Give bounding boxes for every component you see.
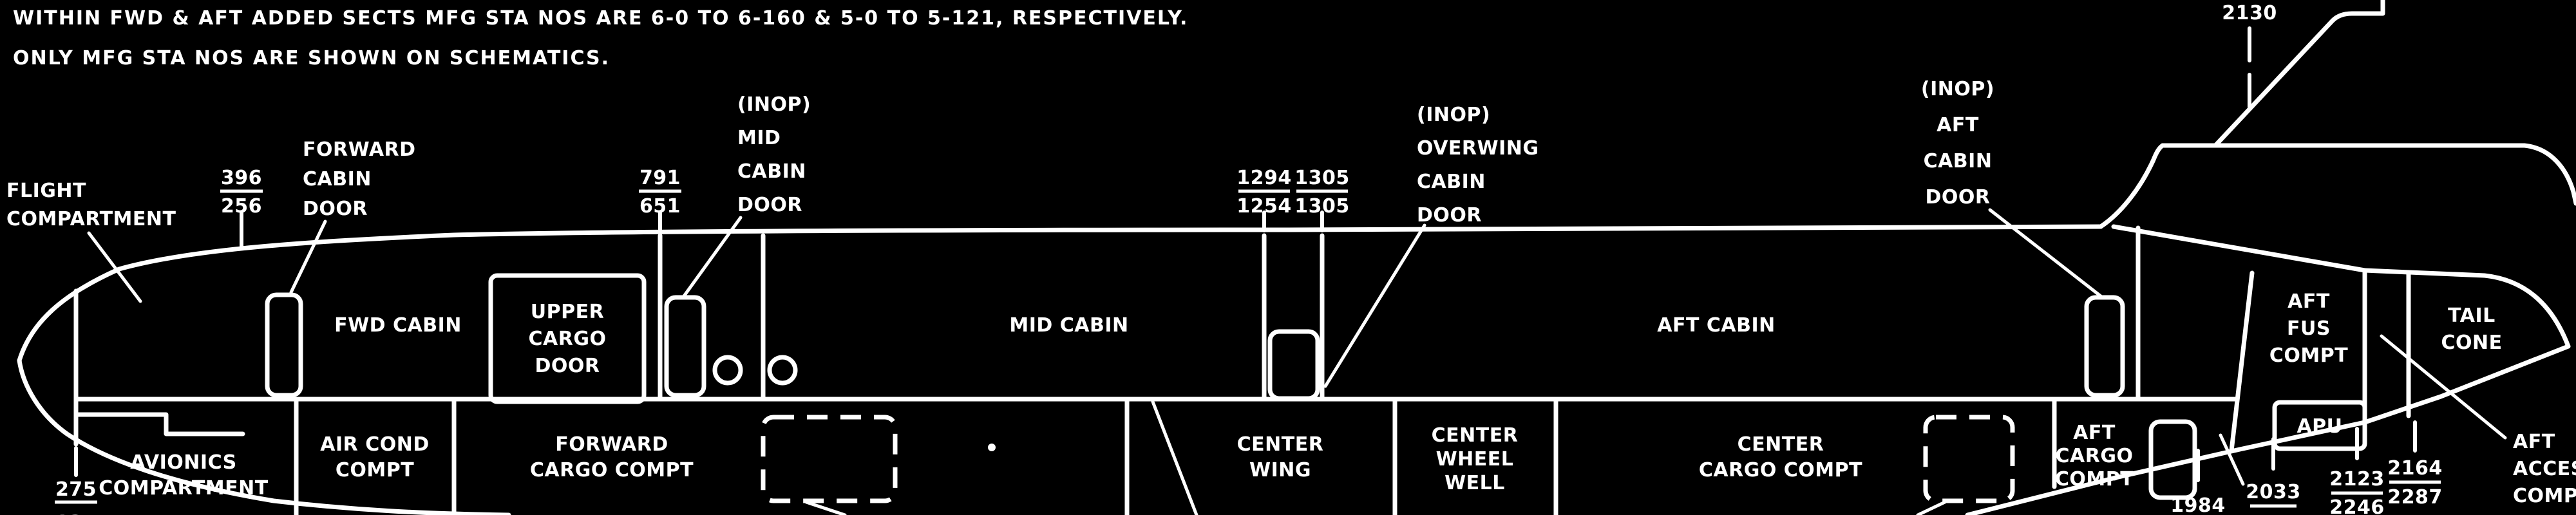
aft-cabin-label: AFT CABIN <box>1657 314 1776 337</box>
aft-access-line3: COMPARTMENT <box>2513 485 2576 507</box>
tail-cone-line2: CONE <box>2441 332 2502 354</box>
station-1984-label: 1984 <box>2170 494 2226 515</box>
overwing-cabin-door-leader <box>1325 225 1425 386</box>
station-2164-fs: 2164 <box>2387 457 2443 480</box>
apu-label: APU <box>2297 415 2342 438</box>
mid-cabin-door-line1: (INOP) <box>737 93 811 116</box>
station-275-mfg: 135 <box>55 512 97 515</box>
avionics-compartment-label: AVIONICS COMPARTMENT <box>99 451 268 500</box>
forward-cabin-door-outline <box>267 295 301 395</box>
avionics-line2: COMPARTMENT <box>99 477 268 500</box>
station-2033-label: 2033 <box>2246 481 2301 506</box>
aft-access-compartment-label: AFT ACCESS COMPARTMENT <box>2513 431 2576 507</box>
center-wing-label: CENTER WING <box>1237 433 1324 482</box>
note-line-2: ONLY MFG STA NOS ARE SHOWN ON SCHEMATICS… <box>13 47 610 70</box>
aft-cabin-door-line4: DOOR <box>1925 186 1990 209</box>
note-line-1: WITHIN FWD & AFT ADDED SECTS MFG STA NOS… <box>13 7 1188 30</box>
station-2130-label: 2130 <box>2222 2 2277 24</box>
aft-cabin-door-leader <box>1990 210 2101 296</box>
upper-cargo-door-line2: CARGO <box>529 328 607 350</box>
center-cargo-compt-label: CENTER CARGO COMPT <box>1699 433 1862 482</box>
overwing-cabin-door-line4: DOOR <box>1417 204 1482 227</box>
aircraft-fuselage-stations-diagram: WITHIN FWD & AFT ADDED SECTS MFG STA NOS… <box>0 0 2576 515</box>
aft-fus-line1: AFT <box>2287 290 2330 313</box>
mid-cabin-door-outline <box>667 297 704 395</box>
flight-compartment-line1: FLIGHT <box>6 180 86 202</box>
center-cargo-door-dashed-outline <box>1926 417 2012 501</box>
station-275-label: 275 135 <box>55 478 97 515</box>
avionics-line1: AVIONICS <box>130 451 237 474</box>
mid-cabin-door-label: (INOP) MID CABIN DOOR <box>737 93 811 216</box>
overwing-cabin-door-label: (INOP) OVERWING CABIN DOOR <box>1417 104 1539 227</box>
mid-cabin-label: MID CABIN <box>1009 314 1128 337</box>
aft-cabin-door-line1: (INOP) <box>1921 78 1994 100</box>
tail-cone-label: TAIL CONE <box>2441 304 2502 354</box>
aft-cargo-line3: COMPT <box>2055 468 2134 491</box>
center-wing-line1: CENTER <box>1237 433 1324 456</box>
avionics-compartment-step-line <box>76 415 243 434</box>
station-791-fs: 791 <box>639 167 681 189</box>
station-396-label: 396 256 <box>220 167 263 218</box>
station-ticks <box>76 28 2415 480</box>
wheel-well-line1: CENTER <box>1432 424 1519 447</box>
forward-cabin-door-line3: DOOR <box>303 198 368 220</box>
flight-compartment-label: FLIGHT COMPARTMENT <box>6 180 176 230</box>
forward-cabin-door-line2: CABIN <box>303 168 372 191</box>
aft-cabin-door-label: (INOP) AFT CABIN DOOR <box>1921 78 1994 209</box>
aft-cargo-compt-label: AFT CARGO COMPT <box>2055 422 2134 491</box>
station-791-mfg: 651 <box>639 195 681 218</box>
flight-compartment-line2: COMPARTMENT <box>6 208 176 230</box>
station-1294-label: 1294 1254 <box>1236 167 1292 218</box>
station-396-fs: 396 <box>221 167 262 189</box>
station-1294-mfg: 1254 <box>1236 195 1292 218</box>
station-1305-label: 1305 1305 <box>1294 167 1350 218</box>
wheel-well-line2: WHEEL <box>1436 448 1514 471</box>
aft-fus-compt-label: AFT FUS COMPT <box>2269 290 2348 367</box>
tail-cone-line1: TAIL <box>2448 304 2495 327</box>
forward-cabin-door-label: FORWARD CABIN DOOR <box>303 138 416 220</box>
forward-cargo-door-leader <box>806 502 845 515</box>
aft-fus-line2: FUS <box>2287 317 2331 340</box>
station-1294-fs: 1294 <box>1236 167 1292 189</box>
overwing-cabin-door-line3: CABIN <box>1417 171 1486 193</box>
station-2123-mfg: 2246 <box>2329 496 2385 515</box>
center-cargo-door-leader <box>1918 502 1945 515</box>
aft-cabin-door-line3: CABIN <box>1924 150 1993 173</box>
station-2033-fs: 2033 <box>2246 481 2301 503</box>
air-cond-compt-label: AIR COND COMPT <box>320 433 429 482</box>
aft-cargo-line2: CARGO <box>2056 445 2134 467</box>
aft-cabin-door-line2: AFT <box>1937 114 1979 136</box>
mid-cabin-door-line4: DOOR <box>737 194 802 216</box>
aft-access-line2: ACCESS <box>2513 458 2576 480</box>
aft-fus-line3: COMPT <box>2269 344 2348 367</box>
wheel-well-line3: WELL <box>1444 472 1505 494</box>
aft-ceiling-taper-line <box>2114 227 2365 270</box>
mid-cabin-door-line2: MID <box>737 127 781 149</box>
aft-cabin-door-outline <box>2087 297 2123 395</box>
compartment-labels: FWD CABIN MID CABIN AFT CABIN AVIONICS C… <box>99 290 2502 500</box>
overwing-cabin-door-outline <box>1270 332 1318 398</box>
fwd-cabin-label: FWD CABIN <box>334 314 462 337</box>
upper-cargo-door-line3: DOOR <box>535 355 600 377</box>
mid-band-leader <box>1153 402 1197 515</box>
aft-pressure-bulkhead-line <box>2231 273 2252 451</box>
forward-cargo-compt-label: FORWARD CARGO COMPT <box>530 433 694 482</box>
cabin-window-left <box>715 357 741 383</box>
station-275-fs: 275 <box>55 478 97 501</box>
aft-access-line1: AFT <box>2513 431 2555 453</box>
reference-dot <box>988 444 996 451</box>
aft-cargo-line1: AFT <box>2073 422 2116 444</box>
air-cond-line2: COMPT <box>336 459 414 482</box>
station-1305-mfg: 1305 <box>1294 195 1350 218</box>
fuselage-top-contour <box>19 227 2101 360</box>
mid-cabin-door-line3: CABIN <box>737 160 806 183</box>
center-wheel-well-label: CENTER WHEEL WELL <box>1432 424 1519 494</box>
dorsal-fin-fillet <box>2101 145 2163 227</box>
station-2123-label: 2123 2246 <box>2329 468 2385 515</box>
station-2164-mfg: 2287 <box>2387 486 2443 509</box>
center-wing-line2: WING <box>1249 459 1311 482</box>
air-cond-line1: AIR COND <box>320 433 429 456</box>
upper-cargo-door-label: UPPER CARGO DOOR <box>529 301 607 377</box>
overwing-cabin-door-line2: OVERWING <box>1417 137 1539 160</box>
station-791-label: 791 651 <box>639 167 681 218</box>
station-2164-label: 2164 2287 <box>2387 457 2443 509</box>
station-1984-fs: 1984 <box>2170 494 2226 515</box>
fwd-cargo-line1: FORWARD <box>555 433 668 456</box>
forward-cabin-door-line1: FORWARD <box>303 138 416 161</box>
center-cargo-line2: CARGO COMPT <box>1699 459 1862 482</box>
center-cargo-line1: CENTER <box>1738 433 1824 456</box>
station-396-mfg: 256 <box>221 195 262 218</box>
upper-cargo-door-line1: UPPER <box>531 301 604 323</box>
fin-root-line <box>2163 145 2576 203</box>
forward-cargo-door-dashed-outline <box>763 417 895 501</box>
overwing-cabin-door-line1: (INOP) <box>1417 104 1490 126</box>
station-1305-fs: 1305 <box>1294 167 1350 189</box>
fwd-cargo-line2: CARGO COMPT <box>530 459 694 482</box>
station-2123-fs: 2123 <box>2329 468 2385 491</box>
forward-cabin-door-leader <box>291 221 325 292</box>
station-2130-fs: 2130 <box>2222 2 2277 24</box>
cabin-window-right <box>770 357 795 383</box>
